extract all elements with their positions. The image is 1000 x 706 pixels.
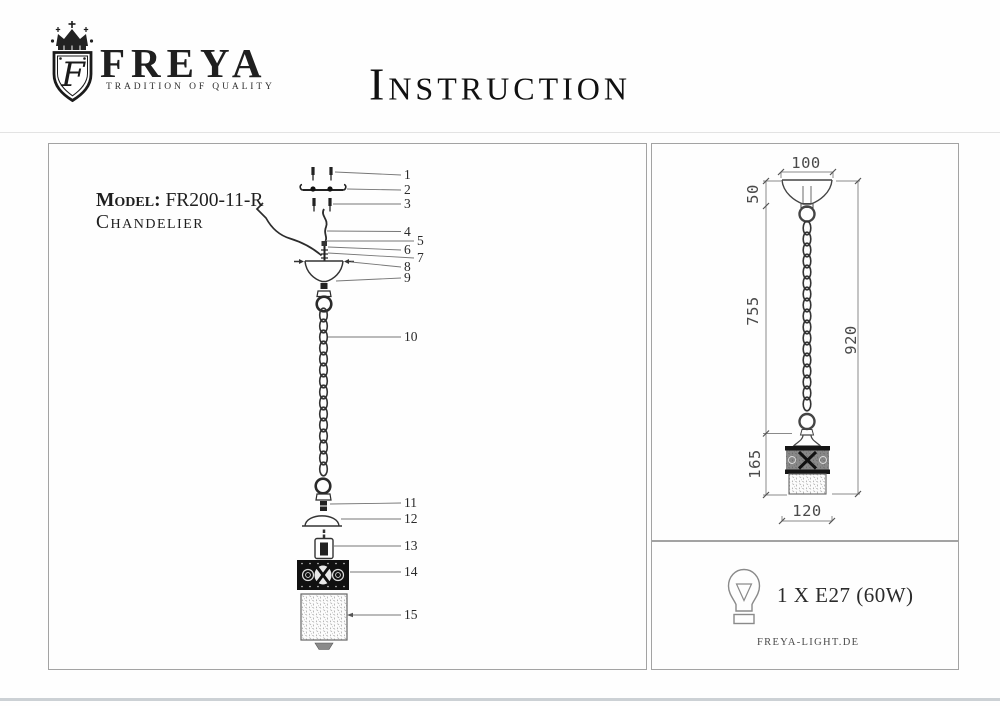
callout-12: 12 <box>404 510 430 527</box>
glass-shade <box>301 594 347 650</box>
dim-chain <box>803 221 811 411</box>
dim-shade-width: 120 <box>792 502 822 520</box>
dim-shade-height: 165 <box>746 449 764 479</box>
dim-suspension-length: 755 <box>744 296 762 326</box>
wire-fittings <box>321 241 328 261</box>
dome-cap <box>302 516 342 526</box>
brand-tagline: TRADITION OF QUALITY <box>106 82 275 92</box>
logo-monogram: F <box>60 55 86 95</box>
mounting-screws-top <box>313 167 331 181</box>
lamp-socket <box>315 530 333 559</box>
exploded-diagram <box>257 167 414 650</box>
callout-3: 3 <box>404 195 430 212</box>
callout-14: 14 <box>404 563 430 580</box>
callout-10: 10 <box>404 328 430 345</box>
lamp-spec: 1 X E27 (60W) <box>777 583 914 608</box>
callout-leaders <box>327 172 414 617</box>
model-label: Model: <box>96 190 161 211</box>
page-title: Instruction <box>369 58 631 111</box>
mounting-screws-lower <box>314 198 330 212</box>
ornament-band <box>297 560 349 590</box>
callout-11: 11 <box>404 494 430 511</box>
dim-canopy <box>782 180 832 222</box>
logo-crest-icon: F <box>51 21 93 101</box>
dim-canopy-height: 50 <box>744 184 762 204</box>
brand-name: FREYA <box>100 45 267 81</box>
canopy <box>294 259 354 282</box>
top-hook-ring <box>317 283 332 311</box>
supply-wire <box>257 203 327 256</box>
callout-15: 15 <box>404 606 430 623</box>
callout-9: 9 <box>404 269 430 286</box>
model-value: FR200-11-R <box>165 190 263 211</box>
mounting-bracket <box>300 185 346 192</box>
bulb-icon <box>729 570 760 624</box>
bottom-hook-ring <box>316 479 331 511</box>
website: FREYA-LIGHT.DE <box>757 637 859 648</box>
dim-lamp <box>785 414 830 494</box>
dim-canopy-width: 100 <box>791 154 821 172</box>
model-line: Model: FR200-11-R <box>96 190 263 212</box>
dim-overall-height: 920 <box>842 325 860 355</box>
chain <box>320 308 328 476</box>
callout-13: 13 <box>404 537 430 554</box>
product-type: Chandelier <box>96 212 204 234</box>
instruction-sheet: F <box>0 0 1000 706</box>
